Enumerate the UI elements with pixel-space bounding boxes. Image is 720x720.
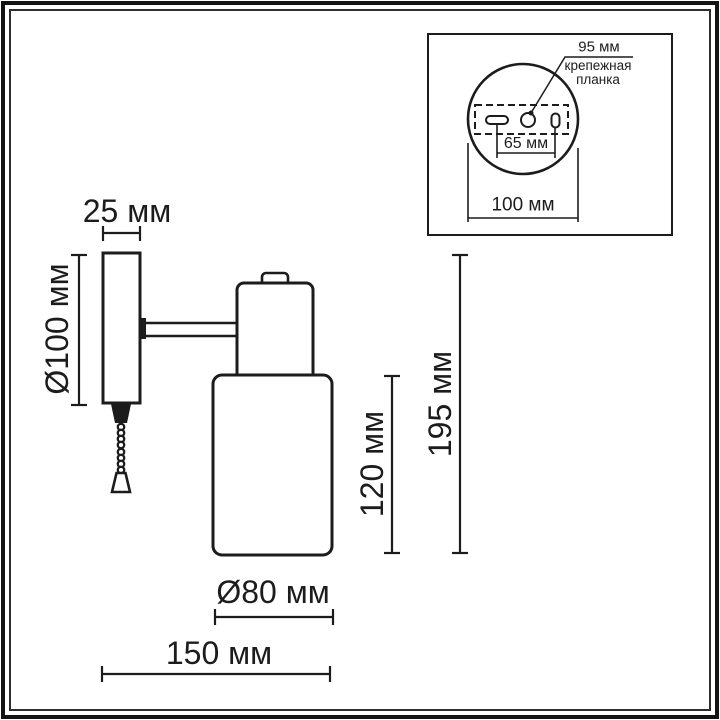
inset-dim-label-plate-length: 95 мм	[578, 40, 619, 55]
chain-connector	[111, 404, 131, 423]
dim-label-plate-width: 25 мм	[83, 195, 171, 227]
lamp-holder	[237, 283, 313, 380]
mounting-arm	[139, 318, 240, 339]
dim-label-total-depth: 150 мм	[166, 637, 272, 669]
pull-handle	[112, 473, 130, 492]
chain-beads	[118, 424, 124, 473]
dim-label-plate-diameter: Ø100 мм	[41, 263, 73, 394]
dim-label-shade-diameter: Ø80 мм	[216, 576, 329, 608]
technical-drawing-canvas: 25 мм Ø100 мм 120 мм 195 мм Ø80 мм 150 м…	[0, 0, 720, 720]
mounting-plate-note-line1: крепежная	[565, 59, 632, 73]
inset-mounting-plate-note: крепежная планка	[565, 59, 632, 87]
inset-dim-label-plate-overall: 100 мм	[491, 196, 554, 215]
inset-dim-label-hole-spacing: 65 мм	[504, 136, 548, 152]
drawing-linework	[0, 0, 720, 720]
mounting-plate-note-line2: планка	[565, 73, 632, 87]
pull-chain	[111, 404, 131, 492]
dim-label-shade-height: 120 мм	[356, 411, 388, 517]
lamp-shade	[213, 375, 332, 555]
wall-plate	[103, 253, 140, 403]
dim-line-shade-diameter	[215, 609, 333, 625]
dim-label-total-height: 195 мм	[424, 351, 456, 457]
